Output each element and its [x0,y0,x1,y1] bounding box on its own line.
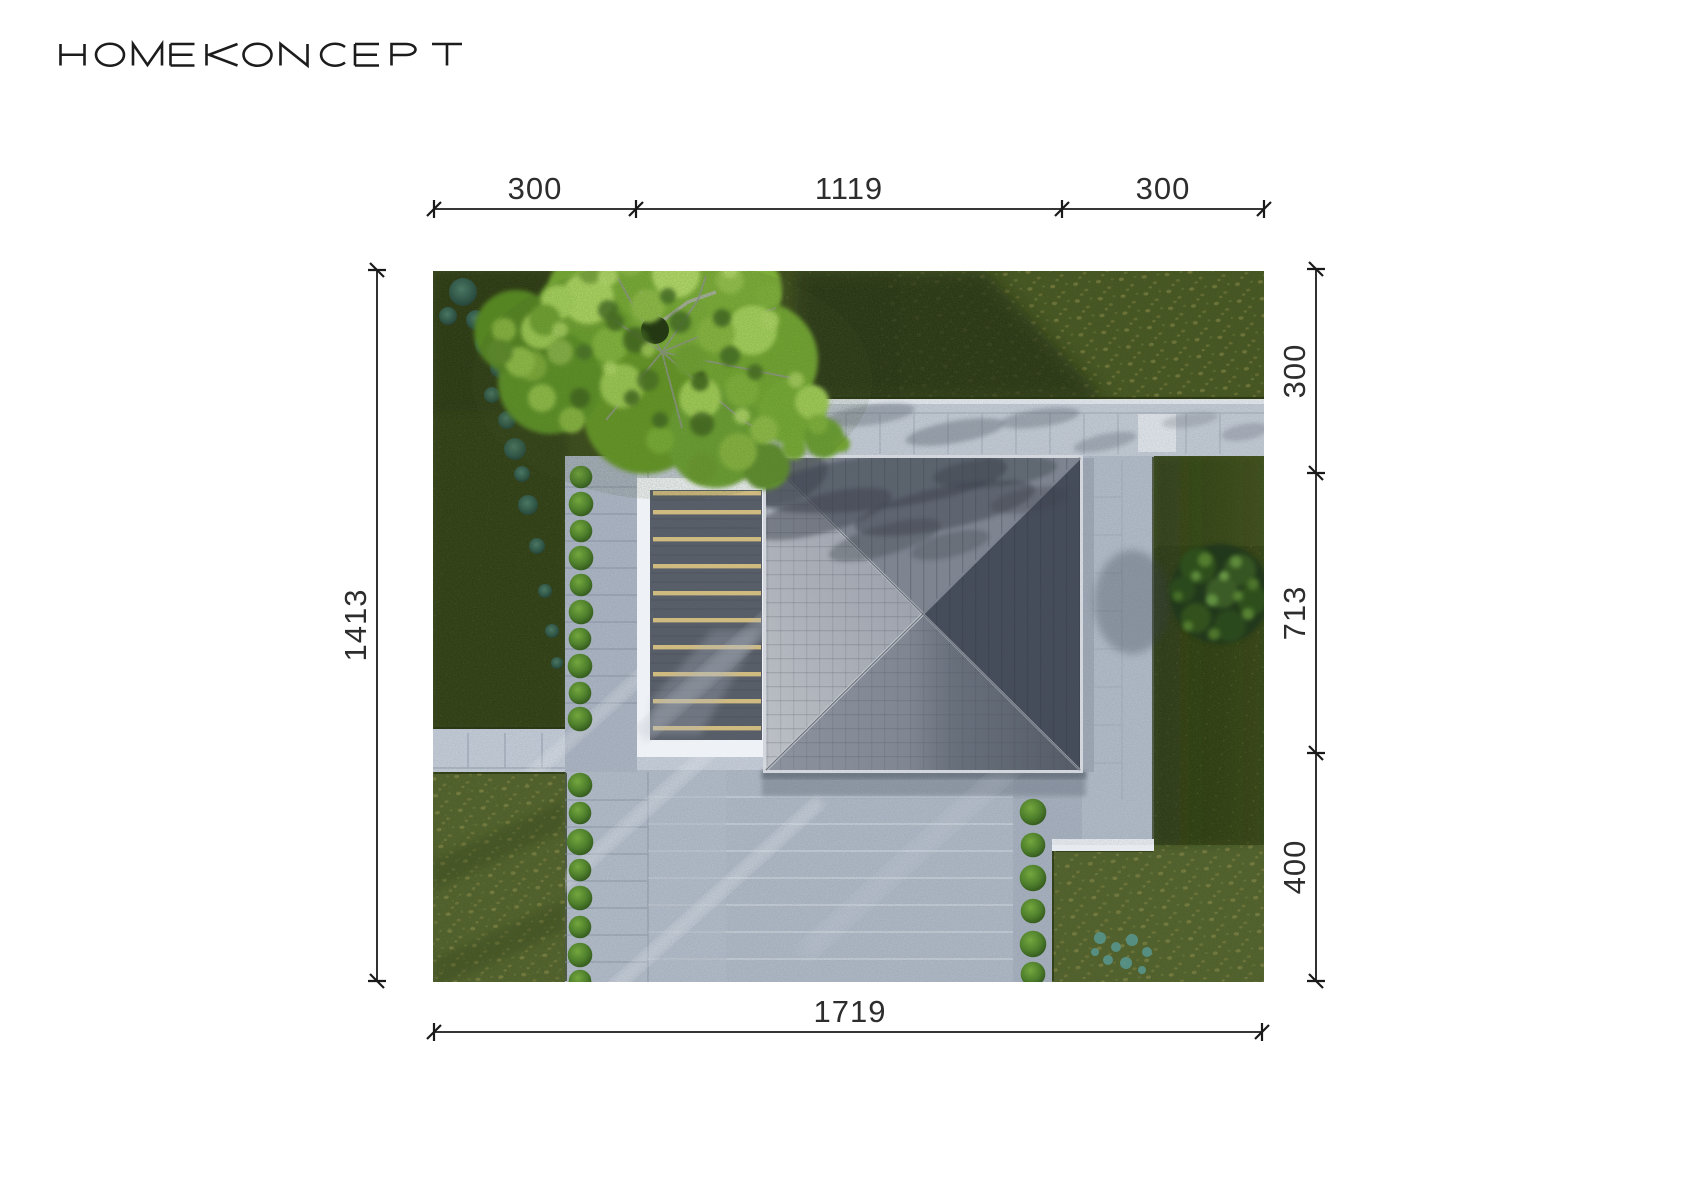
svg-text:300: 300 [1277,344,1312,399]
svg-text:1119: 1119 [815,171,883,206]
svg-text:713: 713 [1277,586,1312,641]
svg-text:300: 300 [508,171,563,206]
svg-text:400: 400 [1277,840,1312,895]
svg-text:1719: 1719 [814,994,887,1029]
svg-text:1413: 1413 [338,589,373,662]
svg-text:300: 300 [1136,171,1191,206]
